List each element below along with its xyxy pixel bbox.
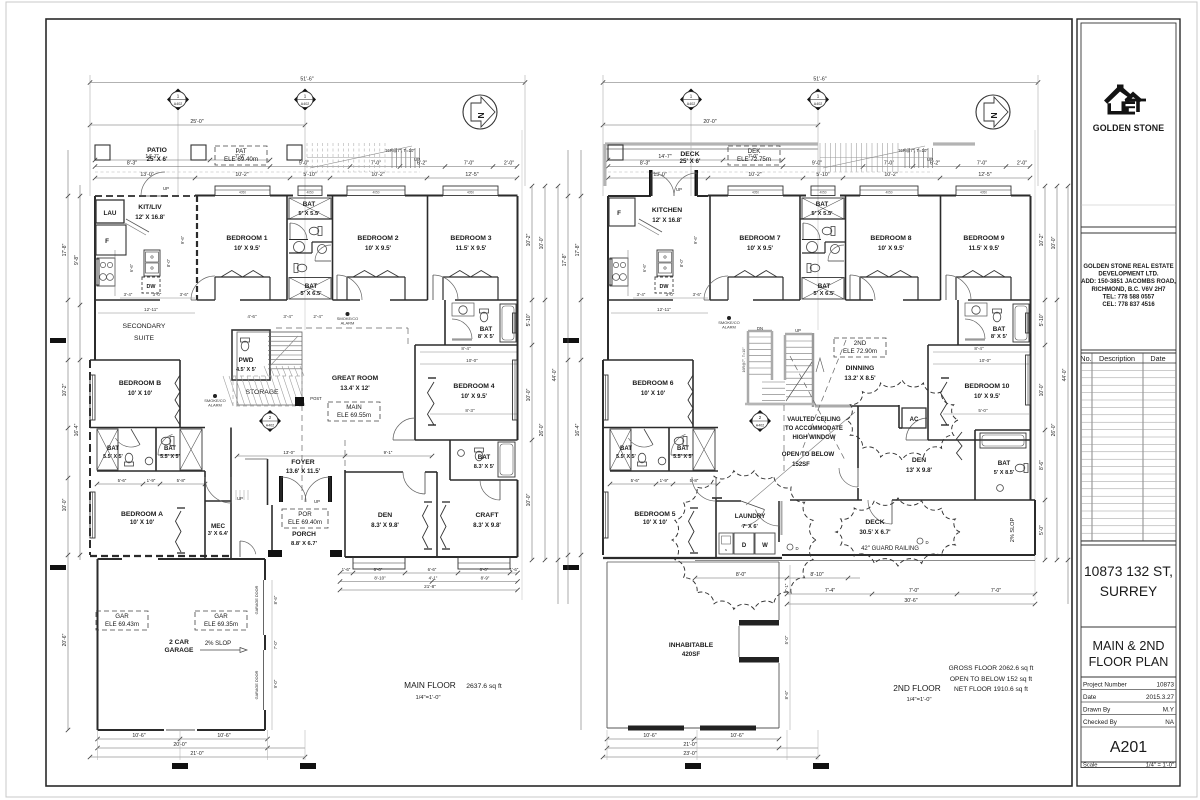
svg-text:13.6' X 11.5': 13.6' X 11.5' (286, 468, 321, 475)
svg-text:8'-0": 8'-0" (736, 572, 746, 578)
svg-text:BEDROOM 10: BEDROOM 10 (965, 383, 1010, 390)
svg-text:2'-0": 2'-0" (504, 161, 514, 167)
svg-text:10' X 9.5': 10' X 9.5' (365, 245, 392, 252)
svg-text:51'-6": 51'-6" (300, 77, 313, 83)
svg-text:10'-0": 10'-0" (466, 358, 478, 363)
svg-text:UP: UP (676, 187, 682, 192)
svg-text:44'-0": 44'-0" (1062, 368, 1068, 381)
svg-text:6'-6": 6'-6" (428, 567, 437, 572)
svg-text:A402: A402 (814, 102, 822, 106)
svg-text:Checked By: Checked By (1083, 719, 1118, 726)
svg-text:21'-8": 21'-8" (424, 584, 436, 589)
svg-text:BEDROOM 3: BEDROOM 3 (450, 235, 491, 242)
svg-text:DEN: DEN (378, 512, 392, 519)
svg-text:GOLDEN STONE REAL ESTATE: GOLDEN STONE REAL ESTATE (1083, 264, 1173, 270)
svg-text:10' X 10': 10' X 10' (643, 519, 668, 526)
svg-text:10'-2": 10'-2" (62, 383, 68, 396)
svg-text:GROSS FLOOR 2062.6 sq ft: GROSS FLOOR 2062.6 sq ft (949, 665, 1034, 672)
svg-text:5'-10": 5'-10" (816, 172, 829, 178)
svg-text:10'-6": 10'-6" (643, 733, 656, 739)
svg-text:SURREY: SURREY (1100, 584, 1158, 599)
svg-text:3'-4": 3'-4" (637, 292, 646, 297)
svg-text:SUITE: SUITE (134, 335, 154, 342)
svg-text:5' X 5.5': 5' X 5.5' (811, 211, 833, 217)
svg-text:Date: Date (1150, 354, 1165, 363)
svg-text:5'-0": 5'-0" (1039, 525, 1045, 535)
svg-text:13' X 9.8': 13' X 9.8' (906, 467, 933, 474)
svg-text:DEK: DEK (748, 148, 762, 155)
svg-text:13.4' X 12': 13.4' X 12' (340, 385, 370, 392)
svg-text:ALARM: ALARM (722, 325, 736, 330)
svg-text:POST: POST (310, 396, 322, 401)
svg-text:5'-6": 5'-6" (631, 478, 640, 483)
svg-text:DEN: DEN (912, 457, 926, 464)
svg-text:12' X 16.8': 12' X 16.8' (135, 214, 165, 221)
svg-text:10'-2": 10'-2" (235, 172, 248, 178)
svg-text:Description: Description (1099, 354, 1135, 363)
svg-text:PATIO: PATIO (147, 147, 167, 154)
svg-text:UP: UP (414, 157, 420, 162)
svg-text:GARAGE: GARAGE (165, 647, 195, 654)
svg-text:8.3' X 5': 8.3' X 5' (474, 464, 495, 470)
svg-text:4050: 4050 (885, 191, 892, 195)
svg-text:420SF: 420SF (682, 651, 700, 658)
svg-text:10'-0": 10'-0" (1039, 383, 1045, 396)
svg-text:PWD: PWD (239, 357, 254, 364)
svg-text:GOLDEN STONE: GOLDEN STONE (1093, 123, 1164, 133)
svg-text:5.5' X 5': 5.5' X 5' (160, 454, 180, 460)
svg-text:KITCHEN: KITCHEN (652, 207, 682, 214)
svg-text:GREAT ROOM: GREAT ROOM (332, 375, 379, 382)
svg-text:51'-6": 51'-6" (813, 77, 826, 83)
svg-text:10'-2": 10'-2" (526, 233, 532, 246)
svg-text:5'-6": 5'-6" (118, 478, 127, 483)
svg-text:No.: No. (1080, 354, 1091, 363)
svg-text:N: N (476, 112, 486, 118)
svg-text:7'-0": 7'-0" (464, 161, 474, 167)
svg-text:10'-2": 10'-2" (1039, 233, 1045, 246)
svg-text:MAIN: MAIN (346, 404, 361, 411)
svg-text:11.5' X 9.5': 11.5' X 9.5' (456, 245, 487, 252)
svg-text:BEDROOM 4: BEDROOM 4 (453, 383, 494, 390)
svg-text:4050: 4050 (980, 191, 987, 195)
svg-text:12'-5": 12'-5" (465, 172, 478, 178)
svg-text:BAT: BAT (818, 283, 831, 290)
svg-text:BAT: BAT (305, 283, 318, 290)
svg-text:10' X 9.5': 10' X 9.5' (747, 245, 774, 252)
svg-text:SECONDARY: SECONDARY (123, 323, 166, 330)
svg-text:9'-6": 9'-6" (180, 235, 185, 244)
svg-text:2% SLOP: 2% SLOP (1010, 517, 1016, 542)
svg-text:GARAGE DOOR: GARAGE DOOR (255, 670, 259, 699)
svg-text:UP: UP (795, 328, 801, 333)
svg-text:DECK: DECK (865, 519, 884, 526)
svg-text:ELE 69.43m: ELE 69.43m (105, 621, 139, 628)
svg-text:5'-10": 5'-10" (303, 172, 316, 178)
svg-text:7'-0": 7'-0" (273, 640, 278, 649)
svg-text:Drawn By: Drawn By (1083, 707, 1111, 714)
svg-text:3'-6": 3'-6" (693, 292, 702, 297)
svg-text:10'-6": 10'-6" (730, 733, 743, 739)
svg-text:BAT: BAT (993, 326, 1006, 333)
svg-text:16'-4": 16'-4" (74, 423, 80, 436)
svg-text:BEDROOM B: BEDROOM B (119, 380, 161, 387)
svg-text:3'-0": 3'-0" (153, 292, 162, 297)
svg-text:8' X 5': 8' X 5' (991, 334, 1008, 340)
svg-text:7'-0": 7'-0" (991, 588, 1001, 594)
svg-text:ALARM: ALARM (341, 321, 355, 326)
svg-text:6'-6": 6'-6" (129, 263, 134, 272)
svg-text:DW: DW (660, 284, 670, 290)
svg-text:1'-6": 1'-6" (342, 567, 351, 572)
svg-text:16'-4": 16'-4" (575, 423, 581, 436)
svg-text:UP: UP (163, 186, 169, 191)
svg-text:2'-0": 2'-0" (1017, 161, 1027, 167)
svg-text:8' X 5': 8' X 5' (478, 334, 495, 340)
svg-text:5' X 5.5': 5' X 5.5' (298, 211, 320, 217)
svg-text:6'-0": 6'-0" (480, 567, 489, 572)
svg-text:6'-6": 6'-6" (642, 263, 647, 272)
svg-text:DN: DN (757, 326, 763, 331)
svg-text:BAT: BAT (677, 446, 689, 452)
svg-text:5.5' X 5': 5.5' X 5' (103, 454, 123, 460)
svg-text:1'-9": 1'-9" (660, 478, 669, 483)
svg-text:5'-8": 5'-8" (690, 478, 699, 483)
svg-text:NA: NA (1165, 719, 1175, 726)
svg-text:5.5' X 5': 5.5' X 5' (616, 454, 636, 460)
svg-text:30.5' X 6.7': 30.5' X 6.7' (859, 529, 891, 536)
svg-text:17'-8": 17'-8" (62, 243, 68, 256)
svg-text:10' X 10': 10' X 10' (641, 390, 666, 397)
svg-text:2 CAR: 2 CAR (169, 639, 189, 646)
svg-text:8'-3": 8'-3" (640, 161, 650, 167)
svg-text:5'-10": 5'-10" (526, 313, 532, 326)
svg-text:UP: UP (927, 157, 933, 162)
svg-text:BEDROOM 8: BEDROOM 8 (870, 235, 911, 242)
svg-text:12' X 16.8': 12' X 16.8' (652, 217, 682, 224)
svg-text:10'-2": 10'-2" (748, 172, 761, 178)
svg-text:8.8' X 6.7': 8.8' X 6.7' (291, 541, 318, 547)
svg-text:20'-6": 20'-6" (62, 633, 68, 646)
svg-text:MAIN FLOOR: MAIN FLOOR (404, 680, 456, 690)
svg-text:OPEN TO BELOW 152 sq ft: OPEN TO BELOW 152 sq ft (950, 676, 1032, 683)
svg-text:8'-9": 8'-9" (481, 576, 490, 581)
svg-text:11.5' X 9.5': 11.5' X 9.5' (969, 245, 1000, 252)
svg-text:9'-0": 9'-0" (299, 161, 309, 167)
svg-text:42" GUARD RAILING: 42" GUARD RAILING (861, 546, 919, 552)
svg-text:BAT: BAT (620, 446, 632, 452)
svg-text:W: W (762, 543, 768, 549)
svg-text:8'-10": 8'-10" (810, 572, 823, 578)
svg-text:9'-0": 9'-0" (812, 161, 822, 167)
svg-text:N: N (989, 112, 999, 118)
svg-text:BEDROOM 2: BEDROOM 2 (357, 235, 398, 242)
svg-text:8'-6": 8'-6" (784, 690, 789, 699)
svg-text:TO ACCOMMODATE: TO ACCOMMODATE (785, 426, 843, 432)
svg-text:30'-6": 30'-6" (904, 598, 917, 604)
svg-text:9'-0": 9'-0" (273, 679, 278, 688)
svg-text:BAT: BAT (478, 454, 491, 461)
svg-text:LAU: LAU (104, 210, 117, 217)
svg-text:DEVELOPMENT LTD.: DEVELOPMENT LTD. (1098, 272, 1159, 278)
svg-text:4050: 4050 (306, 191, 313, 195)
svg-text:8'-10": 8'-10" (374, 576, 386, 581)
svg-text:4.5' X 5': 4.5' X 5' (236, 367, 257, 373)
svg-text:DW: DW (147, 284, 157, 290)
svg-text:8'-4": 8'-4" (461, 346, 471, 351)
svg-text:8'-0": 8'-0" (679, 258, 684, 267)
svg-text:10'-2": 10'-2" (884, 172, 897, 178)
svg-text:ELE 72.90m: ELE 72.90m (843, 348, 877, 355)
svg-text:2015.3.27: 2015.3.27 (1146, 694, 1175, 701)
svg-text:5' X 8.5': 5' X 8.5' (994, 470, 1015, 476)
svg-text:BEDROOM A: BEDROOM A (121, 511, 163, 518)
svg-text:7'-0": 7'-0" (909, 588, 919, 594)
svg-text:25'-0": 25'-0" (190, 119, 203, 125)
svg-text:A402: A402 (756, 424, 764, 428)
svg-text:10873 132 ST,: 10873 132 ST, (1084, 564, 1173, 579)
svg-text:A402: A402 (174, 102, 182, 106)
svg-text:PAT: PAT (235, 148, 246, 155)
svg-text:17'-8": 17'-8" (562, 253, 568, 266)
svg-text:Date: Date (1083, 694, 1097, 701)
svg-text:2'-4": 2'-4" (313, 314, 323, 319)
svg-text:A402: A402 (301, 102, 309, 106)
svg-text:1'-9": 1'-9" (147, 478, 156, 483)
svg-text:7' X 6': 7' X 6' (742, 524, 758, 530)
svg-text:BAT: BAT (107, 446, 119, 452)
svg-text:s: s (725, 548, 727, 552)
svg-text:HIGH WINDOW: HIGH WINDOW (793, 435, 836, 441)
svg-text:FLOOR PLAN: FLOOR PLAN (1089, 655, 1169, 669)
svg-text:D: D (925, 540, 928, 545)
svg-text:7'-4": 7'-4" (825, 588, 835, 594)
svg-text:13'-0": 13'-0" (283, 450, 295, 455)
svg-text:10873: 10873 (1156, 682, 1174, 689)
svg-text:TEL: 778 588 0557: TEL: 778 588 0557 (1103, 294, 1155, 300)
svg-text:GAR: GAR (214, 613, 228, 620)
svg-text:44'-0": 44'-0" (552, 368, 558, 381)
svg-text:17'-8": 17'-8" (575, 243, 581, 256)
svg-text:13'-0": 13'-0" (140, 172, 153, 178)
svg-text:10'-6": 10'-6" (132, 733, 145, 739)
svg-text:M.Y: M.Y (1163, 707, 1175, 714)
svg-text:12'-11": 12'-11" (657, 307, 671, 312)
svg-text:26'-0": 26'-0" (539, 423, 545, 436)
svg-text:UP: UP (314, 499, 320, 504)
svg-text:ELE 69.40m: ELE 69.40m (288, 519, 322, 526)
svg-text:12'-5": 12'-5" (978, 172, 991, 178)
svg-text:BAT: BAT (816, 201, 829, 208)
svg-text:7'-1": 7'-1" (784, 583, 789, 592)
svg-text:Scale: Scale (1083, 763, 1098, 769)
svg-text:STORAGE: STORAGE (245, 389, 279, 396)
svg-text:8'-6": 8'-6" (273, 595, 278, 604)
svg-text:25' X 6': 25' X 6' (680, 158, 701, 165)
svg-text:4050: 4050 (239, 191, 246, 195)
svg-text:5'-0": 5'-0" (784, 635, 789, 644)
svg-text:D: D (742, 543, 747, 549)
svg-text:10'-0": 10'-0" (526, 388, 532, 401)
svg-text:KIT/LIV: KIT/LIV (138, 204, 162, 211)
svg-text:8'-3": 8'-3" (465, 408, 475, 413)
svg-text:BAT: BAT (303, 201, 316, 208)
svg-text:A201: A201 (1110, 739, 1147, 756)
svg-text:A402: A402 (687, 102, 695, 106)
svg-text:5.5' X 5': 5.5' X 5' (673, 454, 693, 460)
svg-text:10' X 9.5': 10' X 9.5' (974, 393, 1001, 400)
svg-text:10'-0": 10'-0" (979, 358, 991, 363)
svg-text:10' X 9.5': 10' X 9.5' (234, 245, 261, 252)
svg-text:NET FLOOR 1910.6 sq ft: NET FLOOR 1910.6 sq ft (954, 686, 1028, 693)
svg-text:BEDROOM 6: BEDROOM 6 (632, 380, 673, 387)
svg-text:10' X 10': 10' X 10' (130, 519, 155, 526)
svg-text:GARAGE DOOR: GARAGE DOOR (255, 585, 259, 614)
svg-text:5'-0": 5'-0" (978, 408, 988, 413)
svg-text:BAT: BAT (164, 446, 176, 452)
svg-text:21'-0": 21'-0" (190, 751, 203, 757)
svg-text:1'-6": 1'-6" (510, 567, 519, 572)
svg-text:ELE 72.75m: ELE 72.75m (737, 156, 771, 163)
svg-text:6'-0": 6'-0" (374, 567, 383, 572)
svg-text:14'-7": 14'-7" (658, 154, 671, 160)
svg-text:LAUNDRY: LAUNDRY (735, 513, 766, 520)
svg-text:20'-0": 20'-0" (703, 119, 716, 125)
svg-text:4050: 4050 (752, 191, 759, 195)
svg-text:10' X 9.5': 10' X 9.5' (461, 393, 488, 400)
svg-text:5' X 6.5': 5' X 6.5' (813, 291, 835, 297)
svg-text:5'-8": 5'-8" (177, 478, 186, 483)
svg-text:3'-6": 3'-6" (180, 292, 189, 297)
svg-text:BEDROOM 9: BEDROOM 9 (963, 235, 1004, 242)
svg-text:CEL: 778 837 4516: CEL: 778 837 4516 (1102, 302, 1155, 308)
svg-text:3'-4": 3'-4" (283, 314, 293, 319)
svg-text:10'-6": 10'-6" (217, 733, 230, 739)
svg-text:8.3' X 9.8': 8.3' X 9.8' (473, 522, 501, 529)
svg-text:BAT: BAT (998, 460, 1011, 467)
svg-text:3'-4": 3'-4" (124, 292, 133, 297)
svg-text:5'-10": 5'-10" (1039, 313, 1045, 326)
svg-text:10'-0": 10'-0" (1051, 236, 1057, 249)
svg-text:CRAFT: CRAFT (475, 512, 499, 519)
svg-text:26'-0": 26'-0" (1051, 423, 1057, 436)
svg-text:7'-0": 7'-0" (977, 161, 987, 167)
svg-text:12'-11": 12'-11" (144, 307, 158, 312)
svg-text:10'-0": 10'-0" (62, 498, 68, 511)
svg-text:ELE 69.55m: ELE 69.55m (337, 412, 371, 419)
svg-text:23'-0": 23'-0" (683, 751, 696, 757)
svg-text:4'-6": 4'-6" (247, 314, 257, 319)
svg-text:MEC: MEC (211, 523, 225, 530)
svg-text:DECK: DECK (680, 151, 699, 158)
svg-text:RICHMOND, B.C. V6V 2H7: RICHMOND, B.C. V6V 2H7 (1091, 287, 1166, 293)
svg-text:BAT: BAT (480, 326, 493, 333)
svg-text:1/4"=1'-0": 1/4"=1'-0" (906, 697, 931, 703)
svg-text:21'-0": 21'-0" (683, 742, 696, 748)
svg-text:1/4" = 1'-0": 1/4" = 1'-0" (1146, 763, 1174, 769)
svg-text:POR: POR (298, 511, 312, 518)
svg-text:DINNING: DINNING (846, 365, 875, 372)
svg-text:1/4"=1'-0": 1/4"=1'-0" (415, 695, 440, 701)
svg-text:BEDROOM 5: BEDROOM 5 (634, 511, 675, 518)
svg-text:8'-3": 8'-3" (127, 161, 137, 167)
svg-text:4050: 4050 (819, 191, 826, 195)
svg-text:4050: 4050 (372, 191, 379, 195)
svg-text:INHABITABLE: INHABITABLE (669, 642, 714, 649)
svg-text:VAULTED CEILING: VAULTED CEILING (787, 417, 841, 423)
svg-text:8.3' X 9.8': 8.3' X 9.8' (371, 522, 399, 529)
svg-text:ALARM: ALARM (208, 403, 222, 408)
svg-text:AC: AC (910, 417, 919, 423)
svg-text:F: F (617, 210, 621, 217)
svg-text:152SF: 152SF (792, 462, 810, 468)
svg-text:10'-2": 10'-2" (371, 172, 384, 178)
svg-text:PORCH: PORCH (292, 531, 316, 538)
svg-text:3' X 6.4': 3' X 6.4' (208, 531, 229, 537)
svg-text:16R@7", T=10": 16R@7", T=10" (742, 347, 746, 373)
svg-text:9'-1": 9'-1" (384, 450, 393, 455)
svg-text:4050: 4050 (467, 191, 474, 195)
svg-text:BEDROOM 1: BEDROOM 1 (226, 235, 267, 242)
svg-text:10' X 9.5': 10' X 9.5' (878, 245, 905, 252)
svg-text:FOYER: FOYER (291, 459, 315, 466)
svg-text:ADD: 150-3851 JACOMBS ROAD,: ADD: 150-3851 JACOMBS ROAD, (1081, 279, 1176, 285)
svg-text:9'-8": 9'-8" (74, 255, 80, 265)
svg-text:F: F (105, 238, 109, 245)
svg-text:2637.6 sq ft: 2637.6 sq ft (466, 683, 502, 690)
svg-text:4'-1": 4'-1" (429, 576, 438, 581)
svg-text:5' X 6.5': 5' X 6.5' (300, 291, 322, 297)
svg-text:8'-0": 8'-0" (166, 258, 171, 267)
svg-text:10'-0": 10'-0" (526, 493, 532, 506)
svg-text:8'-6": 8'-6" (1039, 460, 1045, 470)
svg-text:Project Number: Project Number (1083, 682, 1127, 689)
svg-text:10' X 10': 10' X 10' (128, 390, 153, 397)
svg-text:MAIN & 2ND: MAIN & 2ND (1092, 639, 1164, 653)
svg-text:9'-6": 9'-6" (693, 235, 698, 244)
svg-text:13.2' X 8.5': 13.2' X 8.5' (844, 375, 876, 382)
svg-text:25' X 6': 25' X 6' (147, 156, 168, 163)
svg-text:BEDROOM 7: BEDROOM 7 (739, 235, 780, 242)
svg-text:A402: A402 (266, 424, 274, 428)
svg-text:8'-4": 8'-4" (974, 346, 984, 351)
svg-text:10'-0": 10'-0" (539, 236, 545, 249)
svg-text:2ND FLOOR: 2ND FLOOR (893, 683, 940, 693)
svg-text:GAR: GAR (115, 613, 129, 620)
svg-text:D: D (795, 546, 798, 551)
svg-text:ELE 69.35m: ELE 69.35m (204, 621, 238, 628)
svg-text:3'-0": 3'-0" (666, 292, 675, 297)
svg-text:2ND: 2ND (854, 340, 867, 347)
svg-text:ELE 69.40m: ELE 69.40m (224, 156, 258, 163)
svg-text:2% SLOP: 2% SLOP (205, 641, 231, 647)
